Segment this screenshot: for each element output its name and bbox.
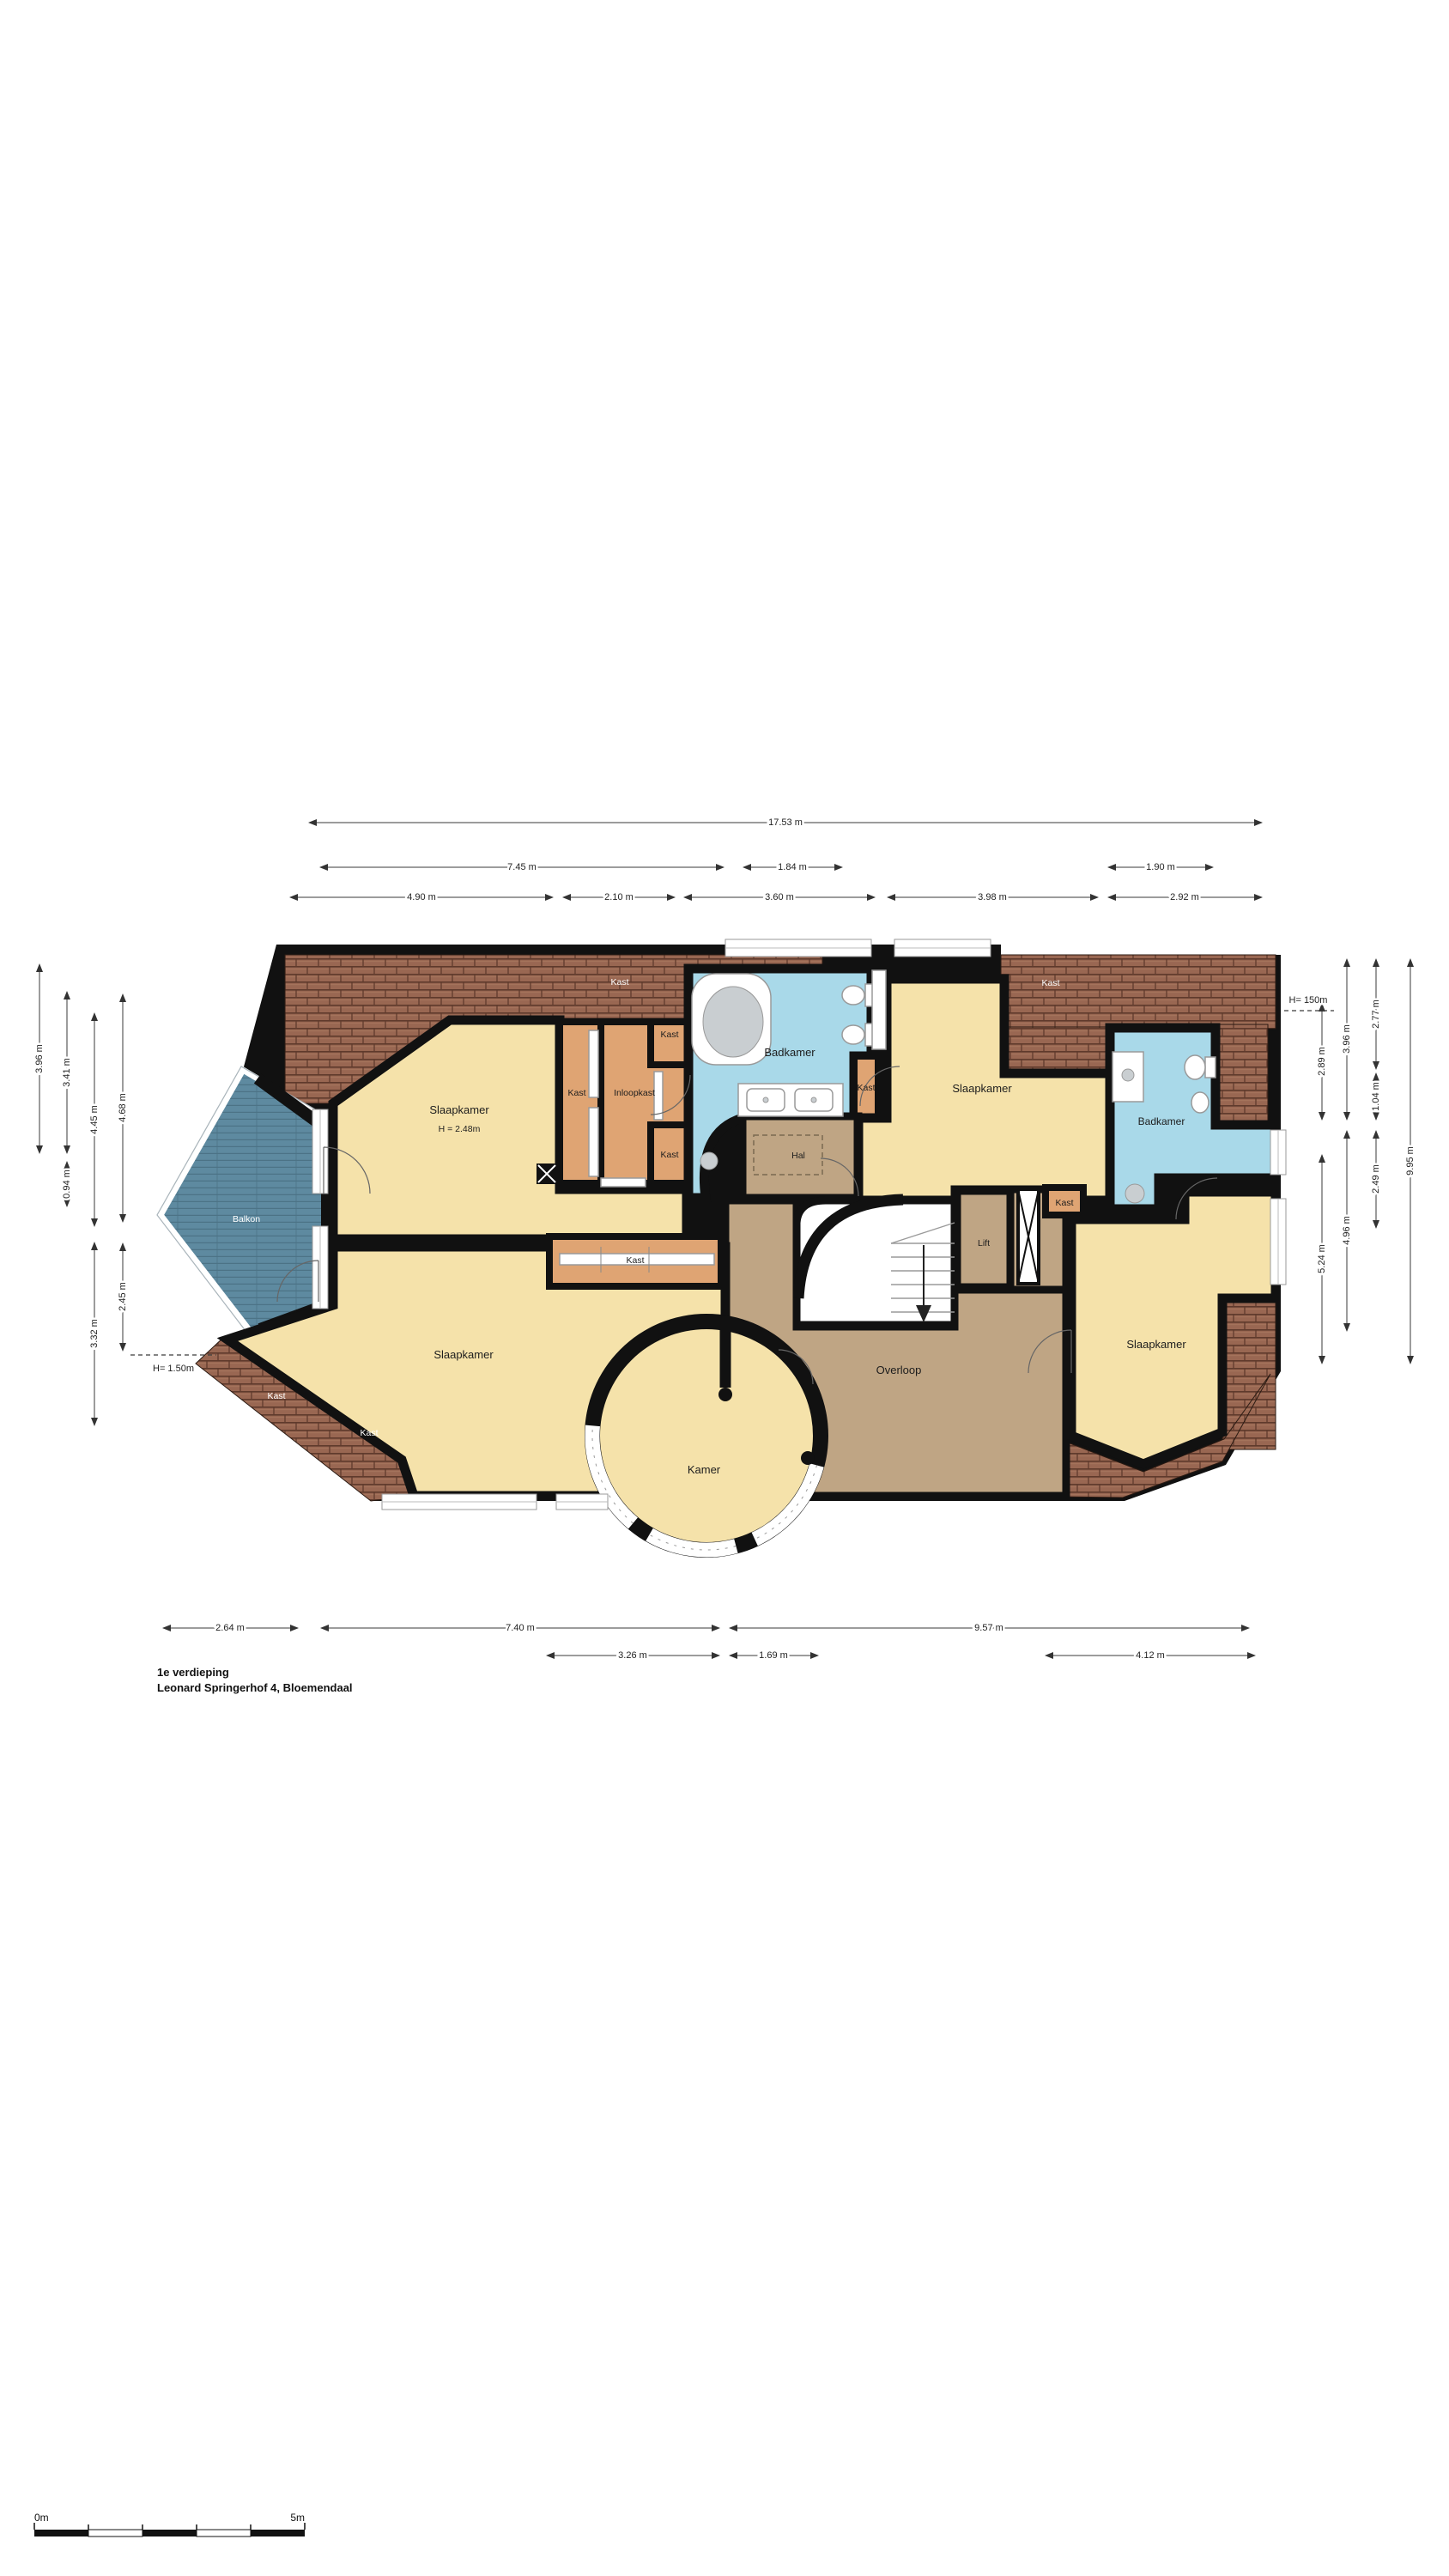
floorplan-page: Slaapkamer H = 2.48m Kast Inloopkast Kas…: [0, 0, 1449, 2576]
scale-ticks: [34, 2523, 305, 2530]
window: [312, 1226, 328, 1309]
roof-top-right-2: [1004, 1027, 1114, 1075]
dimension: 2.49 m: [1371, 1131, 1381, 1228]
window: [1270, 1199, 1286, 1285]
turret-floor: [600, 1329, 813, 1542]
dimension: 3.32 m: [89, 1242, 100, 1425]
label-kast-roof: Kast: [610, 977, 628, 987]
window: [1270, 1130, 1286, 1175]
dim-label: 3.32 m: [89, 1319, 100, 1348]
dimension: 1.04 m: [1371, 1073, 1381, 1120]
dim-label: 2.45 m: [118, 1282, 128, 1311]
dim-label: 9.57 m: [974, 1623, 1003, 1633]
dimension: 4.12 m: [1046, 1650, 1255, 1661]
dim-label: 2.49 m: [1371, 1164, 1381, 1194]
dim-label: 7.45 m: [507, 862, 537, 872]
lift-shaft: [1018, 1189, 1039, 1284]
dimension: 2.92 m: [1108, 892, 1262, 902]
round-sink: [1125, 1184, 1144, 1203]
label-kast-roof: Kast: [1041, 978, 1059, 988]
roof-right-column: [1216, 1024, 1268, 1125]
floorplan-svg: Slaapkamer H = 2.48m Kast Inloopkast Kas…: [0, 0, 1449, 2576]
dimension: 5.24 m: [1317, 1155, 1327, 1364]
plan-subtitle: Leonard Springerhof 4, Bloemendaal: [157, 1681, 353, 1694]
dimension: 1.69 m: [730, 1650, 818, 1661]
label-slaapkamer-br: Slaapkamer: [1126, 1338, 1186, 1351]
dim-label: 4.96 m: [1342, 1216, 1352, 1245]
shower: [1113, 1052, 1143, 1102]
dim-label: 1.90 m: [1146, 862, 1175, 872]
dim-label: 3.96 m: [1342, 1024, 1352, 1054]
dim-label: 3.96 m: [34, 1044, 45, 1073]
dimension: 0.94 m: [62, 1162, 72, 1206]
bidet: [1191, 1092, 1209, 1113]
plan-title: 1e verdieping: [157, 1666, 229, 1679]
dimension: 3.26 m: [547, 1650, 719, 1661]
label-badkamer-left: Badkamer: [764, 1046, 815, 1059]
dim-label: 1.84 m: [778, 862, 807, 872]
dimension: 17.53 m: [309, 817, 1262, 828]
label-slaapkamer-tr: Slaapkamer: [952, 1082, 1012, 1095]
balcony: [157, 1066, 321, 1339]
window: [725, 939, 871, 957]
dimension: 4.45 m: [89, 1013, 100, 1226]
label-slaapkamer-bl: Slaapkamer: [433, 1348, 494, 1361]
dim-label: 0.94 m: [62, 1170, 72, 1199]
label-balkon: Balkon: [233, 1214, 260, 1224]
dimension: 9.57 m: [730, 1623, 1249, 1633]
window: [556, 1494, 608, 1510]
dimension: 3.96 m: [1342, 959, 1352, 1120]
scale-segment: [251, 2530, 305, 2537]
dimension: 9.95 m: [1405, 959, 1416, 1364]
dim-label: 1.69 m: [759, 1650, 788, 1661]
dim-label: H= 150m: [1289, 995, 1328, 1005]
scale-end-label: 5m: [290, 2512, 305, 2524]
dim-label: 3.41 m: [62, 1058, 72, 1087]
roof-top-right: [1001, 955, 1276, 1029]
label-kast: Kast: [660, 1030, 678, 1040]
label-kast: Kast: [660, 1150, 678, 1160]
dimension: 2.64 m: [163, 1623, 298, 1633]
dim-label: 1.04 m: [1371, 1082, 1381, 1111]
dim-label: 4.45 m: [89, 1105, 100, 1134]
scale-start-label: 0m: [34, 2512, 49, 2524]
dimension: 1.90 m: [1108, 862, 1213, 872]
dimension: 3.41 m: [62, 992, 72, 1153]
dim-label: 5.24 m: [1317, 1244, 1327, 1273]
column: [718, 1388, 732, 1401]
label-kast: Kast: [626, 1255, 644, 1266]
label-kast-roof: Kast: [360, 1428, 378, 1438]
label-kast: Kast: [567, 1088, 585, 1098]
turret-kamer: [585, 1314, 828, 1558]
label-overloop: Overloop: [876, 1364, 922, 1376]
dimension: 4.90 m: [290, 892, 553, 902]
dimension: 2.45 m: [118, 1243, 128, 1351]
dimension: 3.96 m: [34, 964, 45, 1153]
label-inloopkast: Inloopkast: [614, 1088, 655, 1098]
label-kast-roof: Kast: [267, 1391, 285, 1401]
window: [894, 939, 991, 957]
dimension: 4.68 m: [118, 994, 128, 1222]
label-slaapkamer-tl-height: H = 2.48m: [439, 1124, 481, 1134]
scale-segment: [142, 2530, 197, 2537]
dim-label: 4.12 m: [1136, 1650, 1165, 1661]
room-kast-nook-top: [651, 1022, 688, 1065]
sink-vanity: [738, 1084, 843, 1116]
dim-label: 2.10 m: [604, 892, 634, 902]
floor-plan: Slaapkamer H = 2.48m Kast Inloopkast Kas…: [157, 939, 1286, 1558]
shaft-box: [537, 1163, 557, 1184]
column: [801, 1451, 815, 1465]
roof-right-lower: [1222, 1298, 1276, 1449]
label-kast: Kast: [1055, 1198, 1073, 1208]
dim-label: 4.90 m: [407, 892, 436, 902]
label-lift: Lift: [978, 1238, 990, 1249]
door-recess: [872, 970, 886, 1049]
toilet: [1185, 1055, 1216, 1079]
height-note-right: H= 150m: [1284, 995, 1334, 1011]
dim-label: 2.77 m: [1371, 999, 1381, 1029]
label-slaapkamer-tl: Slaapkamer: [429, 1103, 489, 1116]
title-block: 1e verdieping Leonard Springerhof 4, Blo…: [157, 1666, 353, 1694]
scale-segment: [34, 2530, 88, 2537]
dim-label: 7.40 m: [506, 1623, 535, 1633]
scale-segment: [88, 2530, 142, 2537]
dim-label: 2.92 m: [1170, 892, 1199, 902]
dimension: 2.10 m: [563, 892, 675, 902]
round-sink: [700, 1152, 718, 1170]
dimension: 2.89 m: [1317, 1004, 1327, 1120]
dim-label: 2.64 m: [215, 1623, 245, 1633]
dimension: 3.98 m: [888, 892, 1098, 902]
dim-label: 17.53 m: [768, 817, 803, 828]
dim-label: 3.98 m: [978, 892, 1007, 902]
dimension: 7.40 m: [321, 1623, 719, 1633]
window: [382, 1494, 537, 1510]
label-kast: Kast: [857, 1083, 875, 1093]
dim-label: H= 1.50m: [153, 1364, 194, 1374]
dimension: 4.96 m: [1342, 1131, 1352, 1331]
label-hal: Hal: [791, 1151, 805, 1161]
label-badkamer-right: Badkamer: [1138, 1115, 1185, 1127]
label-kamer: Kamer: [688, 1463, 721, 1476]
dim-label: 3.26 m: [618, 1650, 647, 1661]
bathtub-basin: [703, 987, 763, 1057]
scale-bar: 0m 5m: [34, 2512, 305, 2537]
scale-segment: [197, 2530, 251, 2537]
dim-label: 3.60 m: [765, 892, 794, 902]
dimension: 3.60 m: [684, 892, 875, 902]
dim-label: 9.95 m: [1405, 1146, 1416, 1176]
dim-label: 2.89 m: [1317, 1047, 1327, 1076]
dimension: 7.45 m: [320, 862, 724, 872]
dimension: 1.84 m: [743, 862, 842, 872]
dim-label: 4.68 m: [118, 1093, 128, 1122]
window: [312, 1109, 328, 1194]
dimension: 2.77 m: [1371, 959, 1381, 1069]
